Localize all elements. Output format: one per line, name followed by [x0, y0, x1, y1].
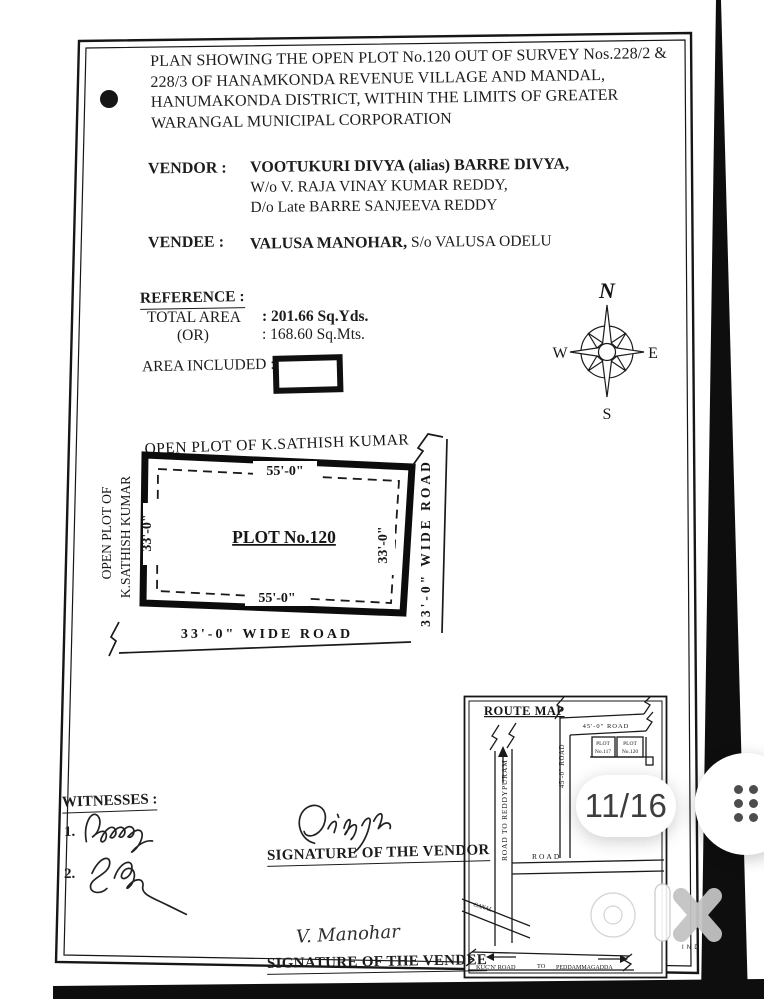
vendor-relation-line1: W/o V. RAJA VINAY KUMAR REDDY,: [250, 176, 569, 197]
olx-o-shape: [598, 900, 629, 931]
route-tiny-box: [646, 757, 653, 765]
witness1-signature: [84, 810, 153, 855]
route-map-title: ROUTE MAP: [484, 704, 565, 718]
reference-heading: REFERENCE :: [140, 288, 245, 310]
area-included-label: AREA INCLUDED :: [142, 356, 275, 377]
vendor-details: VOOTUKURI DIVYA (alias) BARRE DIVYA, W/o…: [250, 156, 570, 217]
plot-neighbor-left-line2: K.SATHISH KUMAR: [118, 476, 133, 598]
plot-diagram: OPEN PLOT OF K.SATHISH KUMAR 55'-0" 55'-…: [85, 425, 465, 670]
olx-o-outline-inner: [604, 906, 622, 924]
vendor-label: VENDOR :: [148, 160, 227, 179]
mid-road-label: ROAD: [532, 852, 561, 861]
compass-east-label: E: [648, 345, 658, 362]
plot-name: PLOT No.120: [232, 527, 336, 547]
vendee-rest: S/o VALUSA ODELU: [407, 232, 552, 251]
road-right-label: 33'-0" WIDE ROAD: [418, 459, 433, 627]
area-included-swatch: [273, 354, 344, 394]
olx-l-shape: [655, 884, 670, 941]
compass-north-label: N: [598, 278, 616, 303]
vendor-name: VOOTUKURI DIVYA (alias) BARRE DIVYA,: [250, 156, 569, 177]
olx-image-viewer-screen: { "document": { "title_lines": [ "PLAN S…: [0, 0, 764, 999]
route-box117-line2: No.117: [595, 749, 611, 755]
witness2-signature: [89, 854, 186, 919]
road45-vertical-label: 45'-0" ROAD: [559, 744, 566, 788]
vendee-label: VENDEE :: [148, 234, 224, 253]
handwritten-signatures: [55, 780, 475, 980]
route-box117-line1: PLOT: [596, 741, 610, 747]
page-indicator-pill: 11/16: [576, 775, 676, 837]
road45-horizontal-label: 45'-0" ROAD: [583, 723, 630, 730]
total-area-label: TOTAL AREA: [147, 309, 241, 327]
vendee-name: VALUSA MANOHAR,: [250, 234, 407, 253]
reddypuram-road-label: ROAD TO REDDYPURAM: [500, 759, 509, 861]
vendee-signature-caption: SIGNATURE OF THE VENDEE: [267, 952, 487, 975]
total-area-value: : 201.66 Sq.Yds.: [262, 308, 368, 326]
compass-center-circle: [599, 344, 616, 361]
road-bottom-edge-line: [119, 642, 411, 653]
plan-title: PLAN SHOWING THE OPEN PLOT No.120 OUT OF…: [150, 44, 668, 134]
punch-hole-mark: [100, 90, 118, 108]
vendor-relation-line2: D/o Late BARRE SANJEEVA REDDY: [250, 196, 569, 217]
or-value: : 168.60 Sq.Mts.: [262, 326, 365, 344]
route-box120-line1: PLOT: [623, 741, 637, 747]
plot-dim-bottom: 55'-0": [258, 591, 295, 606]
vendee-line: VALUSA MANOHAR, S/o VALUSA ODELU: [250, 232, 552, 253]
olx-watermark: INDIA: [560, 860, 764, 970]
bottom-road-label-mid: TO: [537, 963, 546, 970]
compass-south-label: S: [603, 406, 612, 423]
olx-x-shape: [681, 896, 714, 934]
plot-dim-top: 55'-0": [266, 464, 303, 479]
plot-dim-right: 33'-0": [376, 526, 391, 563]
olx-india-label: INDIA: [682, 945, 714, 951]
route-box120-line2: No.120: [622, 749, 639, 755]
compass-west-label: W: [552, 345, 568, 362]
road-right-edge-line: [442, 439, 447, 633]
road-bottom-label: 33'-0" WIDE ROAD: [181, 627, 353, 642]
road-bottom-break-mark: [109, 622, 119, 656]
or-label: (OR): [177, 327, 209, 345]
plot-neighbor-left-line1: OPEN PLOT OF: [99, 486, 114, 579]
plot-dim-left: 33'-0": [140, 514, 155, 551]
compass-rose: N S W E: [545, 272, 675, 432]
